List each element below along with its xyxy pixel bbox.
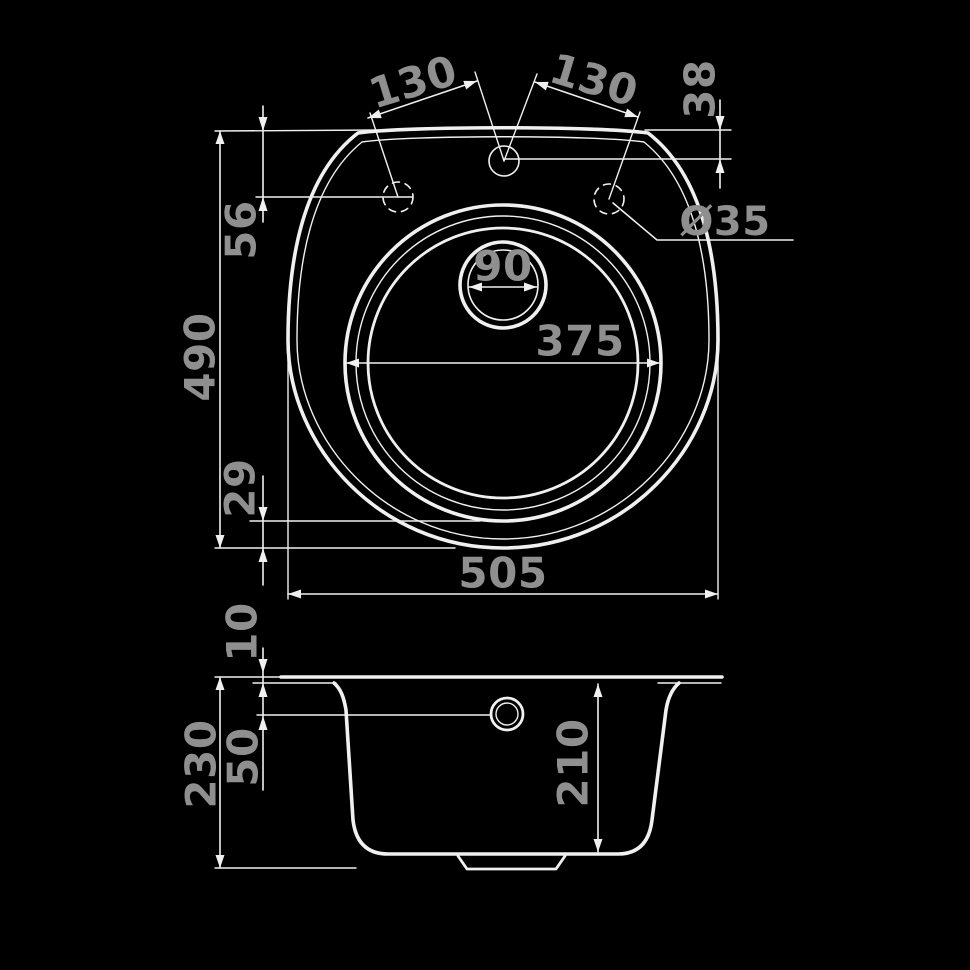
dim-label-130-right: 130 (544, 44, 644, 117)
dim-arrow-56-top (259, 117, 268, 131)
ext-top-tangent-left (215, 130, 380, 131)
sink-dimension-drawing: 130 130 38 56 Ø35 90 375 490 29 505 (0, 0, 970, 970)
dim-label-50: 50 (219, 727, 268, 786)
side-drain-boss (458, 856, 565, 869)
dim-label-90: 90 (473, 242, 532, 291)
dim-label-230: 230 (177, 719, 226, 808)
overflow-ring-inner (496, 703, 518, 725)
ext-hole-left-slant (370, 113, 398, 197)
dim-label-38: 38 (676, 59, 725, 118)
dim-label-dia35: Ø35 (679, 199, 770, 245)
ext-hole-center-slantL (475, 72, 504, 161)
dim-label-490: 490 (176, 312, 225, 401)
technical-drawing-canvas: 130 130 38 56 Ø35 90 375 490 29 505 (0, 0, 970, 970)
side-view: 10 50 230 210 (177, 602, 723, 869)
sink-outer-contour (288, 128, 718, 548)
dim-label-375: 375 (535, 317, 624, 366)
dim-arrow-38-bottom (716, 159, 725, 173)
dim-label-10: 10 (218, 602, 267, 661)
ext-hole-right-slant (609, 112, 640, 199)
dim-arrow-29-bottom (259, 548, 268, 562)
dim-label-210: 210 (549, 718, 598, 807)
top-view: 130 130 38 56 Ø35 90 375 490 29 505 (176, 44, 794, 599)
dim-arrow-10-bottom (259, 683, 268, 697)
dim-label-505: 505 (458, 549, 547, 598)
dim-label-29: 29 (216, 458, 265, 517)
dim-label-56: 56 (217, 200, 266, 259)
side-bowl-outline (334, 683, 679, 854)
dim-label-130-left: 130 (363, 46, 463, 119)
ext-hole-center-slantR (504, 74, 537, 161)
